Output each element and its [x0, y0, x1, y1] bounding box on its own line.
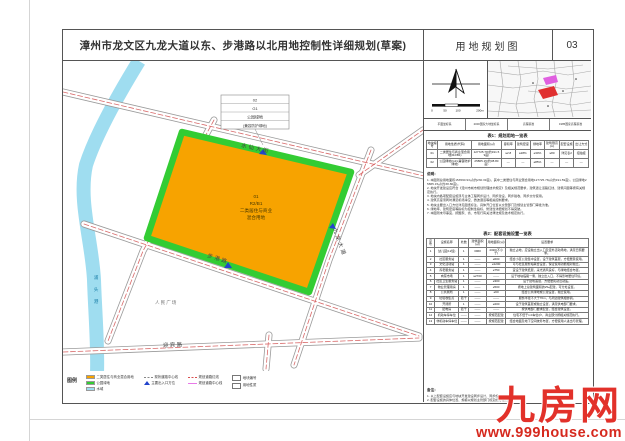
- river-char-1: 浦: [94, 274, 99, 281]
- panel-top-row: 0 50 100 200m: [424, 61, 591, 119]
- legend-label: 规划道路中心线: [199, 381, 223, 385]
- table-cell: 公园绿地(G1)(兼容防护绿地): [438, 159, 472, 168]
- table-cell: 按规范配建: [486, 319, 505, 325]
- table-row: 1幼儿园(12班)139604320(不小于)独立占地，应设独立出入口及室外活动…: [427, 248, 589, 257]
- legend-item: 公园绿地: [86, 381, 134, 385]
- table-cell: 二类居住与商业混合用地(R2/B1): [438, 150, 472, 159]
- parcel-label-use: 二类居住与商业: [240, 207, 273, 214]
- legend-label: 现状道路中心线: [154, 375, 178, 379]
- pink-line-swatch-icon: [188, 383, 197, 384]
- callout-no: 02: [253, 98, 258, 103]
- legend-label: 水域: [97, 387, 104, 391]
- title-block: 漳州市龙文区九龙大道以东、步港路以北用地控制性详细规划(草案) 用地规划图 03: [63, 30, 591, 61]
- legend-label: 二类居住与商业混合用地: [97, 375, 134, 379]
- table-header-cell: 绿地率: [530, 141, 545, 150]
- legend-columns: 二类居住与商业混合用地公园绿地水域现状道路中心线主要出入口方位规划道路红线规划道…: [86, 375, 256, 391]
- river-char-3: 港: [94, 298, 99, 305]
- remarks-block: 备注： 1. 以上配套设施应与地块开发建设同步设计、同步施工、同步交付使用。2.…: [424, 386, 591, 402]
- cyan-swatch-icon: [86, 387, 95, 391]
- table-row: 13非机动车停车位————按规范配建结合地面及地下空间统筹布置，方便使用人进出与…: [427, 319, 589, 325]
- watermark-url: www.999house.com: [476, 425, 622, 441]
- river-label: 浦 头 港: [94, 274, 99, 305]
- legend-title: 图例: [67, 377, 77, 384]
- info-cell-2: 2000国家大地坐标系: [466, 119, 508, 130]
- orange-swatch-icon: [86, 375, 95, 379]
- table-cell: 非机动车停车位: [435, 319, 459, 325]
- table-header-cell: 建筑面积(㎡): [469, 239, 487, 248]
- page-edge-left: [29, 0, 30, 441]
- table-cell: 结合地面及地下空间统筹布置，方便使用人进出与管理。: [506, 319, 589, 325]
- blue-triangle-swatch-icon: [144, 381, 150, 385]
- table-cell: 4320(不小于): [486, 248, 505, 257]
- coordinate-strip: 平面坐标系 2000国家大地坐标系 高程基准 1985国家高程基准: [424, 119, 591, 131]
- note-line: 2. 地块开发建设应符合《漳州市城市规划管理技术规定》及相关规范要求，建筑退让道…: [427, 186, 588, 194]
- map-legend: 图例 二类居住与商业混合用地公园绿地水域现状道路中心线主要出入口方位规划道路红线…: [67, 371, 419, 399]
- notes-title: 说明：: [427, 172, 588, 177]
- sheet-name: 用地规划图: [424, 30, 553, 60]
- table-cell: ≥30%: [530, 150, 545, 159]
- scale-tick-1: 50: [443, 108, 447, 112]
- info-cell-1: 平面坐标系: [424, 119, 466, 130]
- table-cell: —: [516, 159, 531, 168]
- table-header-cell: 处数: [459, 239, 469, 248]
- land-use-table: 地块编号用地性质(代码)用地面积(㎡)容积率建筑密度绿地率建筑限高(m)配套设施…: [424, 140, 591, 170]
- table-cell: ≥85%: [530, 159, 545, 168]
- legend-label: 主要出入口方位: [151, 381, 175, 385]
- legend-item: 规划道路中心线: [188, 381, 222, 385]
- square-label: 人民广场: [155, 299, 177, 306]
- table-cell: 127725.78(约191.59亩): [472, 150, 501, 159]
- table-header-cell: 用地面积(㎡): [472, 141, 501, 150]
- legend-column: 现状道路中心线主要出入口方位: [144, 375, 178, 391]
- remarks-title: 备注：: [427, 388, 588, 393]
- table-header-cell: 设置要求: [506, 239, 589, 248]
- table-cell: —: [559, 159, 574, 168]
- table-cell: 详见表2: [559, 150, 574, 159]
- legend-item: 用地性质: [232, 383, 256, 389]
- table-cell: 02: [427, 159, 438, 168]
- table-header-cell: 用地性质(代码): [438, 141, 472, 150]
- table-cell: ——: [469, 319, 487, 325]
- table-cell: ≤28%: [516, 150, 531, 159]
- table-header-cell: 建筑密度: [516, 141, 531, 150]
- table-cell: 独立占地，应设独立出入口及室外活动场地，满足日照要求。: [506, 248, 589, 257]
- table-cell: ≤2.8: [501, 150, 516, 159]
- parcel-label-use2: 混合用地: [247, 214, 266, 221]
- table-cell: 1: [459, 248, 469, 257]
- table-header-cell: 设施名称: [435, 239, 459, 248]
- notes-list: 1. 本图则总用地面积153590.93㎡(约230.39亩)，其中二类居住与商…: [427, 178, 588, 216]
- note-line: 2. 配套设施的具体位置、规模以规划主管部门核定的方案为准。: [427, 398, 588, 402]
- table-header-cell: 序号: [427, 239, 435, 248]
- red-dash-swatch-icon: [188, 377, 197, 378]
- remarks-list: 1. 以上配套设施应与地块开发建设同步设计、同步施工、同步交付使用。2. 配套设…: [427, 394, 588, 402]
- table-cell: 3960: [469, 248, 487, 257]
- legend-column: 规划道路红线规划道路中心线: [188, 375, 222, 391]
- table-cell: ≤80: [545, 150, 560, 159]
- table-header-cell: 建筑限高(m): [545, 141, 560, 150]
- land-use-map: 01 R2/B1 二类居住与商业 混合用地 02 G1 公园绿地: [63, 61, 424, 402]
- scale-bar: 0 50 100 200m: [426, 100, 486, 114]
- drawing-sheet: 漳州市龙文区九龙大道以东、步港路以北用地控制性详细规划(草案) 用地规划图 03: [62, 29, 594, 404]
- table-cell: 13: [427, 319, 435, 325]
- drawing-title: 漳州市龙文区九龙大道以东、步港路以北用地控制性详细规划(草案): [63, 30, 424, 60]
- note-line: 7. 本图则未尽事宜，按国家、省、市现行有关法律法规及技术规定执行。: [427, 211, 588, 215]
- table-row: 01二类居住与商业混合用地(R2/B1)127725.78(约191.59亩)≤…: [427, 150, 589, 159]
- table2-caption: 表2：配套设施设置一览表: [424, 229, 591, 238]
- table-header-cell: 容积率: [501, 141, 516, 150]
- table-cell: —: [574, 159, 589, 168]
- planning-drawing-page: 漳州市龙文区九龙大道以东、步港路以北用地控制性详细规划(草案) 用地规划图 03: [0, 0, 625, 441]
- compass-cell: 0 50 100 200m: [424, 61, 488, 118]
- legend-item: 二类居住与商业混合用地: [86, 375, 134, 379]
- green-swatch-icon: [86, 381, 95, 385]
- gray-dash-swatch-icon: [144, 377, 153, 378]
- page-edge-bottom: [29, 419, 625, 420]
- legend-label: 地块编号: [243, 376, 257, 380]
- table-header-cell: 用地面积(㎡): [486, 239, 505, 248]
- callout-use2: (兼容防护绿地): [243, 123, 267, 128]
- table-cell: 招拍挂: [574, 150, 589, 159]
- legend-label: 用地性质: [243, 383, 257, 387]
- scale-tick-2: 100: [455, 108, 460, 112]
- table1-caption: 表1：规划用地一览表: [424, 131, 591, 140]
- legend-item: 现状道路中心线: [144, 375, 178, 379]
- location-inset-map: [488, 61, 591, 118]
- scale-tick-3: 200m: [476, 108, 484, 112]
- legend-column: 二类居住与商业混合用地公园绿地水域: [86, 375, 134, 391]
- scale-tick-0: 0: [431, 108, 433, 112]
- callout-use: 公园绿地: [247, 114, 263, 120]
- table-cell: 1: [427, 248, 435, 257]
- parcel-label-code: R2/B1: [250, 201, 263, 206]
- map-canvas: 01 R2/B1 二类居住与商业 混合用地 02 G1 公园绿地: [63, 61, 423, 402]
- table-row: 02公园绿地(G1)(兼容防护绿地)25865.15(约38.80亩)——≥85…: [427, 159, 589, 168]
- table-cell: 幼儿园(12班): [435, 248, 459, 257]
- legend-label: 规划道路红线: [199, 375, 219, 379]
- note-line: 1. 本图则总用地面积153590.93㎡(约230.39亩)，其中二类居住与商…: [427, 178, 588, 186]
- table-cell: —: [545, 159, 560, 168]
- table-header-cell: 地块编号: [427, 141, 438, 150]
- info-panel: 0 50 100 200m: [424, 61, 591, 402]
- info-cell-4: 1985国家高程基准: [550, 119, 591, 130]
- box-swatch-icon: [232, 383, 241, 389]
- sheet-number: 03: [553, 30, 591, 60]
- table-cell: ——: [459, 319, 469, 325]
- box-swatch-icon: [232, 375, 241, 381]
- legend-item: 规划道路红线: [188, 375, 222, 379]
- table-header-cell: 出让方式: [574, 141, 589, 150]
- legend-label: 公园绿地: [97, 381, 111, 385]
- notes-block: 说明： 1. 本图则总用地面积153590.93㎡(约230.39亩)，其中二类…: [424, 170, 591, 229]
- table-cell: 25865.15(约38.80亩): [472, 159, 501, 168]
- table-cell: —: [501, 159, 516, 168]
- north-arrow-icon: [426, 66, 486, 100]
- facilities-table: 序号设施名称处数建筑面积(㎡)用地面积(㎡)设置要求1幼儿园(12班)13960…: [424, 238, 591, 386]
- river-char-2: 头: [94, 286, 99, 293]
- callout-code: G1: [252, 106, 258, 111]
- legend-item: 地块编号: [232, 375, 256, 381]
- table-header-cell: 配套设施: [559, 141, 574, 150]
- legend-column: 地块编号用地性质: [232, 375, 256, 391]
- info-cell-3: 高程基准: [508, 119, 550, 130]
- legend-item: 水域: [86, 387, 134, 391]
- legend-item: 主要出入口方位: [144, 381, 178, 385]
- parcel-label-no: 01: [253, 194, 259, 199]
- table-cell: 01: [427, 150, 438, 159]
- road-label-south: 迎宾路: [163, 340, 184, 349]
